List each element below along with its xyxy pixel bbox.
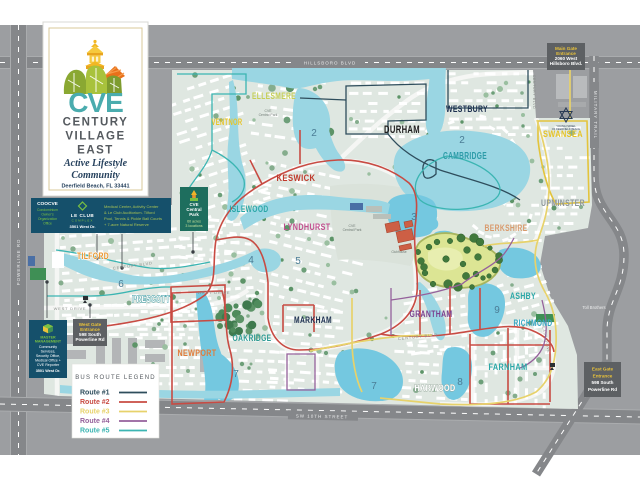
svg-text:+ 7-acre Natural Reserve: + 7-acre Natural Reserve [104, 222, 150, 227]
svg-text:FARNHAM: FARNHAM [489, 362, 528, 373]
svg-text:POWERLINE RD: POWERLINE RD [16, 239, 21, 286]
svg-text:HARWOOD: HARWOOD [415, 383, 456, 394]
svg-text:Toll Brothers: Toll Brothers [582, 305, 605, 310]
svg-text:BUS ROUTE LEGEND: BUS ROUTE LEGEND [75, 375, 156, 381]
svg-text:OF DEERFIELD BEACH: OF DEERFIELD BEACH [552, 127, 581, 131]
svg-text:Condominium: Condominium [37, 208, 58, 212]
svg-text:Medical Office +: Medical Office + [35, 359, 61, 363]
svg-text:WEST DRIVE: WEST DRIVE [198, 290, 231, 295]
svg-text:Route #3: Route #3 [80, 409, 110, 416]
svg-text:ISLEWOOD: ISLEWOOD [230, 204, 269, 215]
svg-text:3501 West Dr.: 3501 West Dr. [36, 369, 61, 373]
svg-text:CAMBRIDGE: CAMBRIDGE [443, 150, 487, 162]
svg-text:& Le Club Auditorium. Tilford: & Le Club Auditorium. Tilford [104, 210, 155, 215]
svg-text:Services,: Services, [41, 350, 56, 354]
svg-text:Office: Office [43, 222, 52, 226]
svg-text:WEST DRIVE: WEST DRIVE [54, 306, 87, 311]
svg-text:HILLSBORO BLVD: HILLSBORO BLVD [304, 61, 356, 66]
svg-text:Deerfield Beach, FL 33441: Deerfield Beach, FL 33441 [61, 184, 129, 190]
svg-text:EAST: EAST [77, 145, 114, 157]
svg-text:Security Office,: Security Office, [36, 354, 60, 358]
svg-text:Park: Park [189, 212, 199, 217]
svg-text:Powerline Rd: Powerline Rd [75, 337, 104, 342]
svg-text:Entrance: Entrance [593, 374, 613, 379]
svg-text:ELLESMERE: ELLESMERE [252, 91, 296, 101]
svg-text:CENTURY BLVD: CENTURY BLVD [532, 75, 536, 110]
svg-text:RICHMOND: RICHMOND [514, 318, 553, 328]
svg-text:Medical Center, Activity Cente: Medical Center, Activity Center [104, 204, 159, 209]
svg-text:Owner's: Owner's [41, 213, 54, 217]
svg-text:CVE Reporter: CVE Reporter [37, 363, 60, 367]
svg-text:9: 9 [494, 305, 500, 316]
svg-text:Route #5: Route #5 [80, 428, 110, 435]
svg-text:LE CLUB: LE CLUB [71, 213, 95, 218]
svg-text:MILITARY TRAIL: MILITARY TRAIL [593, 91, 598, 139]
svg-text:DURHAM: DURHAM [384, 124, 420, 136]
svg-text:Route #2: Route #2 [80, 399, 110, 406]
svg-text:COMPLEX: COMPLEX [72, 219, 94, 223]
svg-text:COOCVE: COOCVE [37, 201, 59, 207]
svg-text:Community: Community [39, 345, 57, 349]
svg-text:VILLAGE: VILLAGE [65, 131, 125, 143]
svg-text:Pool, Tennis & Pickle Ball Cou: Pool, Tennis & Pickle Ball Courts [104, 216, 162, 221]
svg-text:KESWICK: KESWICK [277, 173, 316, 184]
svg-text:7: 7 [371, 381, 377, 392]
svg-text:Central Park: Central Park [259, 113, 278, 117]
svg-text:LYNDHURST: LYNDHURST [284, 222, 331, 233]
svg-text:MANAGEMENT: MANAGEMENT [35, 340, 62, 344]
svg-text:UPMINSTER: UPMINSTER [541, 198, 585, 209]
svg-text:8: 8 [457, 377, 463, 388]
svg-text:3: 3 [411, 212, 417, 223]
svg-text:Powerline Rd: Powerline Rd [588, 387, 617, 392]
svg-text:VENTNOR: VENTNOR [212, 117, 243, 127]
svg-text:6: 6 [118, 279, 124, 290]
svg-text:BERKSHIRE: BERKSHIRE [485, 223, 528, 234]
svg-text:CVE: CVE [68, 87, 123, 118]
svg-text:OAKRIDGE: OAKRIDGE [233, 333, 272, 344]
svg-text:Central Park: Central Park [343, 228, 362, 232]
svg-text:4: 4 [248, 255, 254, 266]
svg-text:NEWPORT: NEWPORT [178, 348, 217, 359]
svg-text:598 South: 598 South [592, 380, 614, 385]
svg-text:TILFORD: TILFORD [77, 251, 109, 262]
svg-text:CENTURY: CENTURY [63, 117, 129, 129]
svg-text:Organization: Organization [38, 217, 57, 221]
svg-text:Community: Community [71, 170, 120, 181]
svg-text:3501 West Dr.: 3501 West Dr. [70, 224, 96, 229]
svg-text:Route #4: Route #4 [80, 418, 110, 425]
svg-text:Active Lifestyle: Active Lifestyle [63, 158, 128, 169]
svg-text:Route #1: Route #1 [80, 390, 110, 397]
svg-text:GRANTHAM: GRANTHAM [410, 309, 453, 320]
svg-text:PRESCOTT: PRESCOTT [132, 294, 170, 305]
svg-text:5: 5 [295, 256, 301, 267]
svg-text:Hillsboro Blvd.: Hillsboro Blvd. [550, 61, 582, 66]
svg-text:MARKHAM: MARKHAM [294, 315, 332, 326]
svg-text:Clubhouse: Clubhouse [391, 250, 406, 254]
svg-text:WESTBURY: WESTBURY [446, 104, 488, 115]
svg-text:60 acres: 60 acres [187, 220, 201, 224]
svg-text:East Gate: East Gate [592, 367, 614, 372]
svg-text:2: 2 [459, 135, 465, 146]
svg-text:3 locations: 3 locations [185, 224, 202, 228]
svg-text:7: 7 [233, 369, 239, 380]
svg-text:2: 2 [311, 128, 317, 139]
svg-text:ASHBY: ASHBY [510, 291, 536, 301]
